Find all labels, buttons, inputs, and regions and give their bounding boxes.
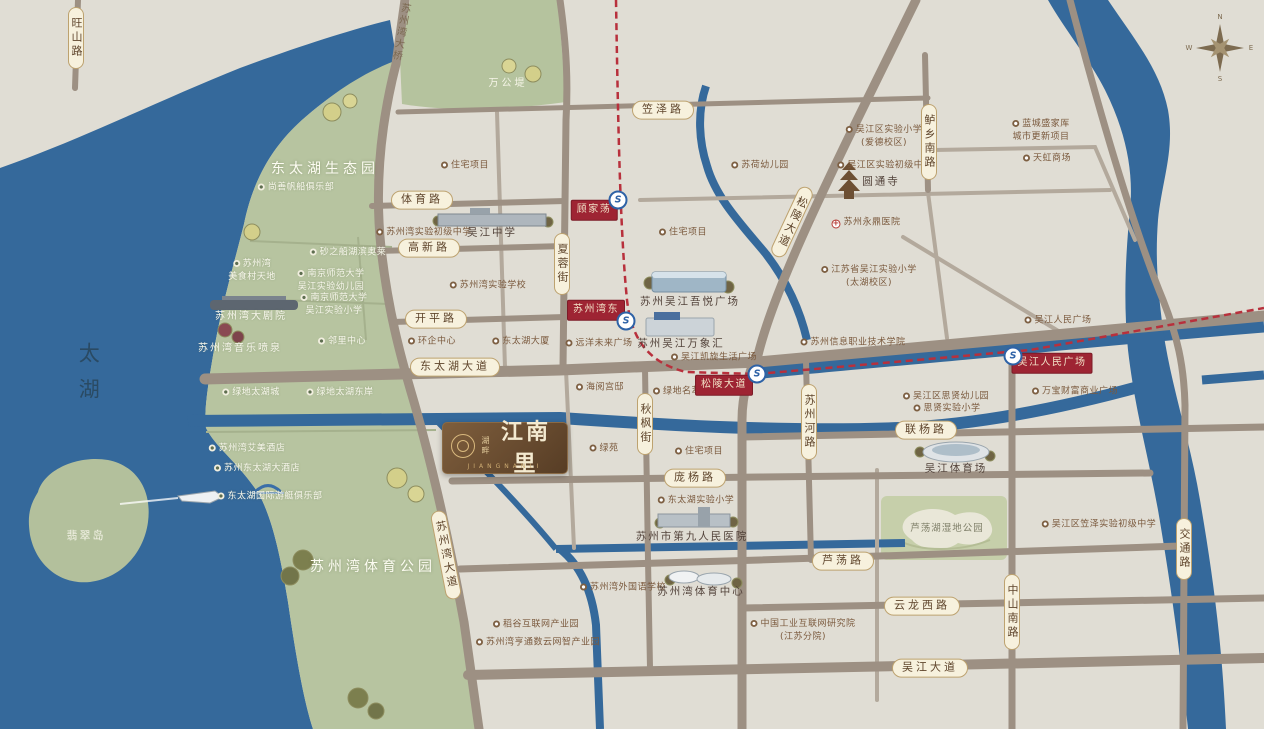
road-minor bbox=[640, 190, 1110, 200]
stadium-building bbox=[923, 442, 989, 462]
compass-icon bbox=[1196, 24, 1244, 72]
road-luxiangnan bbox=[925, 55, 928, 190]
wuyue-plaza-building bbox=[652, 272, 726, 292]
road-gaoxin bbox=[378, 246, 565, 251]
grand-theatre-building bbox=[210, 296, 298, 310]
compass-n-label: N bbox=[1217, 13, 1222, 21]
road-songling-avenue bbox=[758, 0, 916, 355]
compass-w-label: W bbox=[1186, 44, 1193, 52]
brand-latin: JIANGNANLI bbox=[443, 463, 567, 470]
compass-e-label: E bbox=[1249, 44, 1253, 52]
sports-center-building bbox=[669, 571, 731, 585]
wangongdi-green bbox=[400, 0, 566, 109]
compass-s-label: S bbox=[1218, 75, 1222, 83]
jiangnanli-project-plate: 湖畔 江南里 JIANGNANLI bbox=[442, 422, 568, 474]
main-river bbox=[1048, 0, 1226, 729]
road-suzhouhe bbox=[806, 362, 811, 560]
ninth-hospital-building bbox=[658, 507, 730, 527]
road-tiyu bbox=[372, 201, 565, 206]
road-minor bbox=[497, 112, 505, 368]
brand-prefix: 湖畔 bbox=[480, 436, 491, 456]
road-wangshan bbox=[75, 0, 78, 88]
road-wujiang-avenue bbox=[468, 658, 1264, 675]
map-canvas bbox=[0, 0, 1264, 729]
wujiang-highschool-building bbox=[438, 208, 546, 226]
location-map: N S W E 东太湖生态园苏州湾体育公园万公堤太湖翡翠岛芦荡湖湿地公园 尚善帆… bbox=[0, 0, 1264, 729]
road-qiufeng bbox=[645, 368, 650, 668]
mixc-building bbox=[646, 312, 714, 336]
road-kaiping bbox=[392, 317, 565, 322]
brand-seal-icon bbox=[451, 434, 475, 458]
road-minor bbox=[903, 237, 1060, 332]
